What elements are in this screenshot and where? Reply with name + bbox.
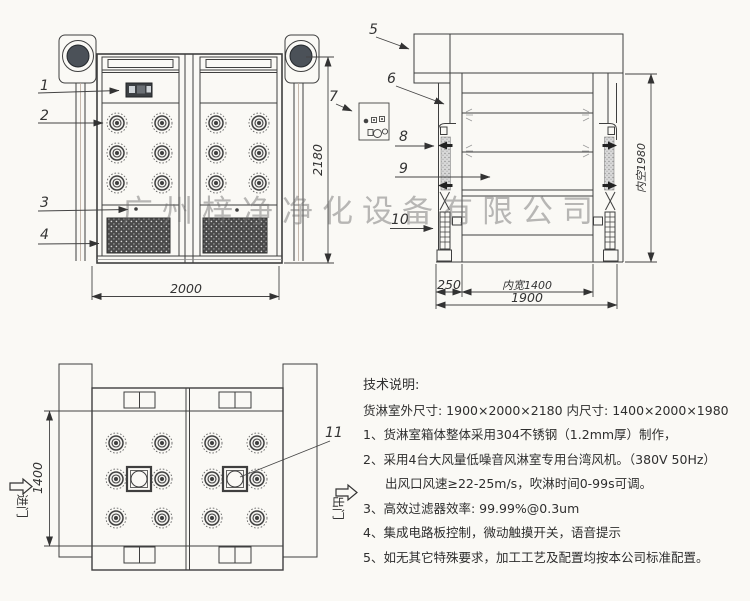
side-column-right (294, 83, 303, 261)
part-label-7: 7 (329, 89, 338, 105)
part-label-2: 2 (40, 108, 49, 124)
dim-front-height (284, 57, 334, 263)
entrance-arrow-icon (10, 479, 32, 494)
light-fixture-right (223, 467, 247, 491)
technical-drawing-sheet: 2000 2180 1 2 3 4 7 (0, 0, 750, 601)
part-label-9: 9 (399, 161, 408, 177)
dim-side-left-value: 250 (437, 277, 461, 292)
part-label-11: 11 (325, 425, 343, 441)
light-fixture-left (127, 467, 151, 491)
exit-marker: 出门 (331, 485, 357, 520)
part-label-8: 8 (399, 129, 408, 145)
part-label-6: 6 (387, 71, 396, 87)
chamber-panels (462, 93, 593, 235)
nozzles-front (107, 113, 269, 193)
note-item: 出风口风速≥22-25m/s，吹淋时间0-99s可调。 (363, 472, 750, 497)
notes-size-line: 货淋室外尺寸: 1900×2000×2180 内尺寸: 1400×2000×19… (363, 399, 750, 424)
door-knob (594, 217, 603, 225)
note-item: 5、如无其它特殊要求，加工工艺及配置均按本公司标准配置。 (363, 546, 750, 571)
note-item: 1、货淋室箱体整体采用304不锈钢（1.2mm厚）制作， (363, 423, 750, 448)
side-part-labels: 5 6 8 9 10 (369, 22, 490, 229)
part-label-10: 10 (391, 212, 409, 228)
dim-side-inner-height-value: 内空1980 (635, 143, 648, 193)
dim-front-height-value: 2180 (310, 144, 325, 176)
dim-plan-depth-value: 1400 (30, 462, 45, 494)
note-item: 4、集成电路板控制，微动触摸开关，语音提示 (363, 521, 750, 546)
plan-side-right (283, 364, 317, 557)
spray-marks (466, 109, 589, 157)
dim-plan-depth (44, 411, 92, 546)
part-label-4: 4 (40, 227, 49, 243)
note-item: 3、高效过滤器效率: 99.99%@0.3um (363, 497, 750, 522)
dim-front-width-value: 2000 (170, 281, 202, 296)
side-view (414, 34, 623, 262)
exit-label: 出门 (331, 496, 346, 520)
part-label-3: 3 (40, 195, 49, 211)
top-plenum (414, 34, 623, 73)
front-view (59, 35, 319, 263)
notes-title: 技术说明: (363, 374, 750, 399)
external-control-box: 7 (329, 89, 389, 140)
door-top-panel (102, 57, 179, 70)
part-label-1: 1 (40, 78, 49, 94)
control-panel (126, 83, 152, 97)
return-grille-right (203, 218, 267, 253)
top-fan-unit (414, 34, 450, 83)
part-label-5: 5 (369, 22, 378, 38)
technical-notes: 技术说明: 货淋室外尺寸: 1900×2000×2180 内尺寸: 1400×2… (363, 374, 750, 570)
side-column-left (76, 83, 85, 261)
door-top-panel (200, 57, 277, 70)
dim-side-total-value: 1900 (511, 290, 543, 305)
door-column-right (594, 124, 619, 262)
plan-side-left (59, 364, 92, 557)
note-item: 2、采用4台大风量低噪音风淋室专用台湾风机。（380V 50Hz） (363, 448, 750, 473)
plan-view (59, 364, 317, 570)
return-grille-left (107, 218, 170, 253)
door-knob (453, 217, 462, 225)
entrance-marker: 进门 (10, 479, 32, 518)
door-column-left (437, 124, 462, 262)
plan-door-frames (124, 392, 251, 563)
entrance-label: 进门 (15, 494, 30, 518)
